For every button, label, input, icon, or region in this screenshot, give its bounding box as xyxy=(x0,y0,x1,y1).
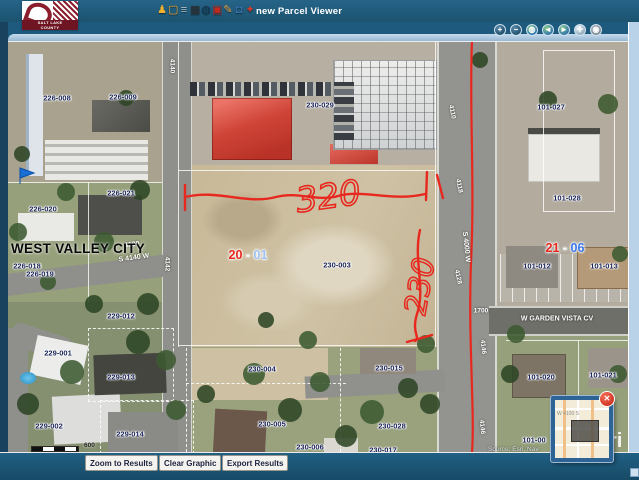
parcel-line xyxy=(178,42,179,347)
white-building-226-020 xyxy=(18,213,74,241)
overview-street-line xyxy=(563,400,566,458)
road-4000-west xyxy=(437,42,497,452)
parcel-line xyxy=(506,340,628,341)
house-230-005 xyxy=(213,409,267,452)
road-garden-vista xyxy=(489,306,628,336)
swimming-pool xyxy=(20,372,36,384)
mobile-home-rows xyxy=(45,140,148,180)
house-101-020 xyxy=(512,354,566,398)
map-toolbar: +−◍◄►✛◉ xyxy=(8,22,628,42)
app-title: new Parcel Viewer xyxy=(256,6,342,17)
clear-graphic-button[interactable]: Clear Graphic xyxy=(159,455,221,471)
parcel-line xyxy=(178,170,435,171)
logo-text: SALT LAKE COUNTY xyxy=(22,20,78,30)
print-icon[interactable]: ▦ xyxy=(190,2,200,19)
parcel-line-dashed xyxy=(186,383,346,384)
export-pdf-icon[interactable]: ▣ xyxy=(212,2,222,19)
slide-tower xyxy=(26,54,43,176)
zoom-out-button[interactable]: − xyxy=(510,24,522,36)
full-extent-button[interactable]: ◍ xyxy=(526,24,538,36)
corner-resize-icon[interactable] xyxy=(630,468,639,477)
logo-swoosh xyxy=(22,1,53,20)
parcel-line-dashed xyxy=(88,328,174,402)
right-frame-strip xyxy=(628,22,639,452)
shared-links-icon[interactable]: ✦ xyxy=(245,2,255,19)
select-box-icon[interactable]: ▢ xyxy=(168,2,178,19)
pan-button[interactable]: ✛ xyxy=(574,24,586,36)
parcel-line-dashed xyxy=(340,348,341,452)
globe-tool-icon[interactable]: ◍ xyxy=(201,2,211,19)
identify-person-icon[interactable]: ♟ xyxy=(157,2,167,19)
house-101-021 xyxy=(588,348,628,388)
overview-extent-box[interactable] xyxy=(571,420,599,442)
toolbar-icon-row: ♟▢≡▦◍▣✎◘✦ xyxy=(157,2,255,19)
export-results-button[interactable]: Export Results xyxy=(222,455,288,471)
vacant-dirt-parcel xyxy=(178,165,437,347)
gray-house-101-012 xyxy=(506,246,558,288)
parcel-line-dashed xyxy=(186,348,187,452)
zoom-in-button[interactable]: + xyxy=(494,24,506,36)
house-230-015 xyxy=(360,348,416,374)
tan-building xyxy=(577,247,628,289)
zoom-to-results-button[interactable]: Zoom to Results xyxy=(85,455,158,471)
parcel-line xyxy=(8,182,162,183)
salt-lake-county-logo: SALT LAKE COUNTY xyxy=(22,1,78,30)
overview-close-button[interactable]: ✕ xyxy=(599,391,615,407)
identify-tool-button[interactable]: ◉ xyxy=(590,24,602,36)
red-roof-building xyxy=(212,98,292,160)
parcel-line-dashed xyxy=(100,400,194,452)
logo-line2: COUNTY xyxy=(22,25,78,30)
parked-cars-column xyxy=(334,82,354,140)
map-viewport[interactable]: 320 230 226-008226-009226-020226-021226-… xyxy=(8,42,628,452)
scale-label: 600 xyxy=(84,442,95,449)
logo-stripes xyxy=(53,1,78,20)
parcel-viewer-app: ♟▢≡▦◍▣✎◘✦ new Parcel Viewer SALT LAKE CO… xyxy=(0,0,639,480)
app-toolbar: ♟▢≡▦◍▣✎◘✦ new Parcel Viewer xyxy=(0,0,639,22)
logo-artwork xyxy=(22,1,78,20)
security-lock-icon[interactable]: ◘ xyxy=(234,2,244,19)
left-frame-border xyxy=(0,22,8,452)
white-shed xyxy=(324,438,358,452)
parcel-line xyxy=(178,345,436,346)
parcel-line xyxy=(435,42,436,347)
map-nav-buttons: +−◍◄►✛◉ xyxy=(494,24,602,36)
overview-street-label: W 4100 S xyxy=(557,411,579,417)
bottom-bar: Zoom to ResultsClear GraphicExport Resul… xyxy=(0,452,639,480)
draw-pencil-icon[interactable]: ✎ xyxy=(223,2,233,19)
house-226-009 xyxy=(92,100,150,132)
city-label: WEST VALLEY CITY xyxy=(11,241,145,256)
previous-extent-button[interactable]: ◄ xyxy=(542,24,554,36)
parcel-line xyxy=(543,50,615,212)
next-extent-button[interactable]: ► xyxy=(558,24,570,36)
layers-icon[interactable]: ≡ xyxy=(179,2,189,19)
parked-cars-row xyxy=(190,82,332,96)
